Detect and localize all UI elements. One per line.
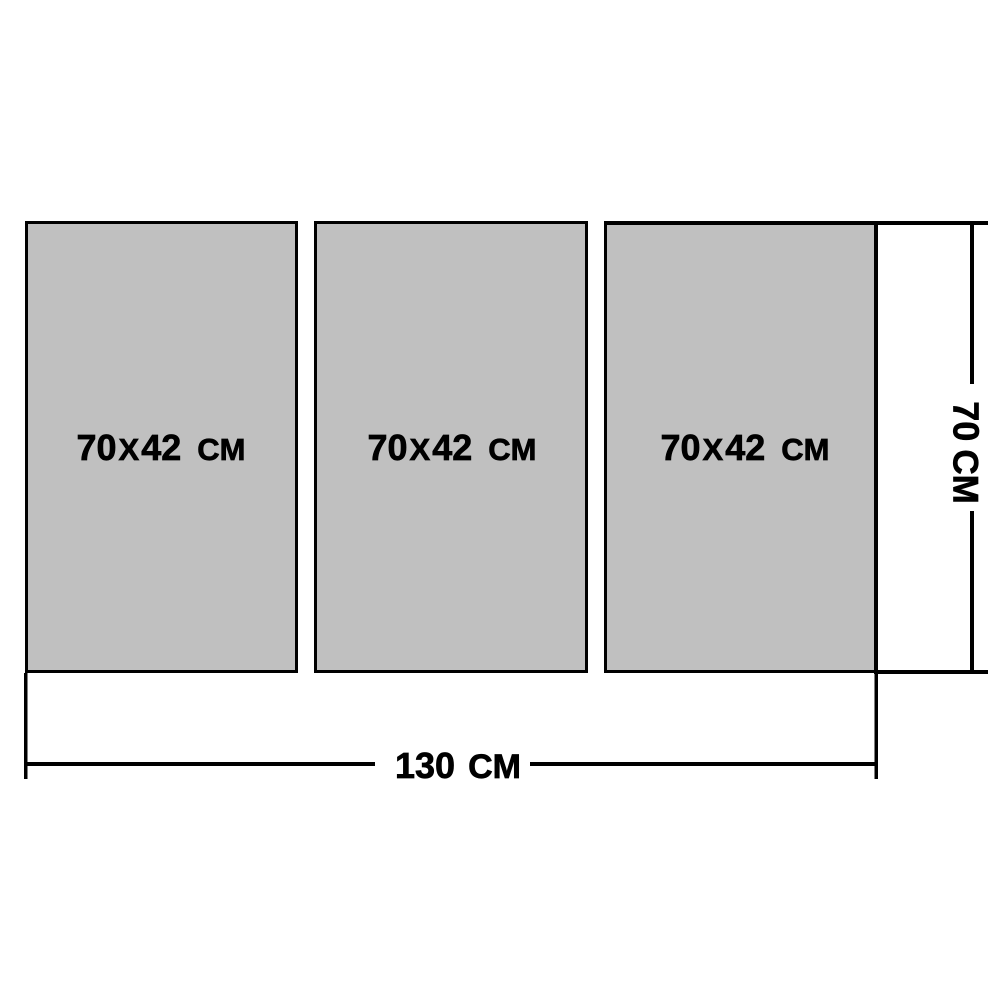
svg-text:70X42CM: 70X42CM bbox=[661, 427, 830, 468]
svg-text:70CM: 70CM bbox=[946, 401, 987, 503]
svg-text:70X42CM: 70X42CM bbox=[368, 427, 537, 468]
svg-text:70X42CM: 70X42CM bbox=[77, 427, 246, 468]
